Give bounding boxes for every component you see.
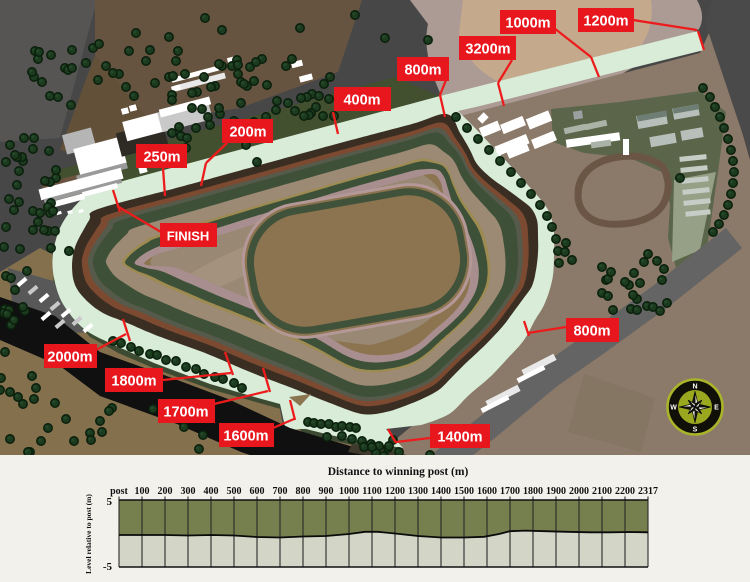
svg-text:5: 5 [107, 496, 113, 508]
svg-text:1400: 1400 [431, 486, 451, 497]
svg-text:800m: 800m [573, 324, 610, 340]
svg-text:200: 200 [158, 486, 173, 497]
svg-text:1500: 1500 [454, 486, 474, 497]
svg-text:400m: 400m [343, 93, 380, 109]
svg-text:400: 400 [204, 486, 219, 497]
svg-text:800: 800 [296, 486, 311, 497]
svg-text:N: N [692, 384, 697, 391]
svg-text:2200: 2200 [615, 486, 635, 497]
svg-text:1800: 1800 [523, 486, 543, 497]
svg-text:FINISH: FINISH [167, 229, 210, 244]
svg-text:1100: 1100 [362, 486, 381, 497]
svg-text:Level relative to post (m): Level relative to post (m) [84, 494, 93, 574]
svg-text:100: 100 [135, 486, 150, 497]
svg-text:1400m: 1400m [437, 430, 482, 446]
svg-text:1000m: 1000m [505, 16, 550, 32]
svg-text:1300: 1300 [408, 486, 428, 497]
svg-text:2317: 2317 [638, 486, 658, 497]
svg-text:200m: 200m [229, 125, 266, 141]
svg-text:250m: 250m [143, 150, 180, 166]
svg-text:W: W [670, 405, 677, 412]
svg-text:500: 500 [227, 486, 242, 497]
svg-text:1700: 1700 [500, 486, 520, 497]
svg-text:1700m: 1700m [163, 405, 208, 421]
svg-text:1600: 1600 [477, 486, 497, 497]
svg-text:300: 300 [181, 486, 196, 497]
svg-text:1800m: 1800m [111, 374, 156, 390]
svg-text:700: 700 [273, 486, 288, 497]
svg-text:E: E [714, 405, 719, 412]
svg-text:-5: -5 [103, 561, 113, 573]
svg-text:2100: 2100 [592, 486, 612, 497]
svg-text:2000m: 2000m [47, 350, 92, 366]
svg-text:600: 600 [250, 486, 265, 497]
svg-text:post: post [110, 486, 128, 497]
svg-text:2000: 2000 [569, 486, 589, 497]
svg-text:900: 900 [319, 486, 334, 497]
svg-text:1200: 1200 [385, 486, 405, 497]
svg-text:Distance to winning post (m): Distance to winning post (m) [328, 466, 469, 478]
svg-text:S: S [693, 427, 698, 434]
svg-text:1200m: 1200m [583, 14, 628, 30]
svg-text:3200m: 3200m [465, 42, 510, 58]
svg-text:1000: 1000 [339, 486, 359, 497]
svg-text:800m: 800m [404, 63, 441, 79]
svg-text:1900: 1900 [546, 486, 566, 497]
svg-text:1600m: 1600m [223, 429, 268, 445]
